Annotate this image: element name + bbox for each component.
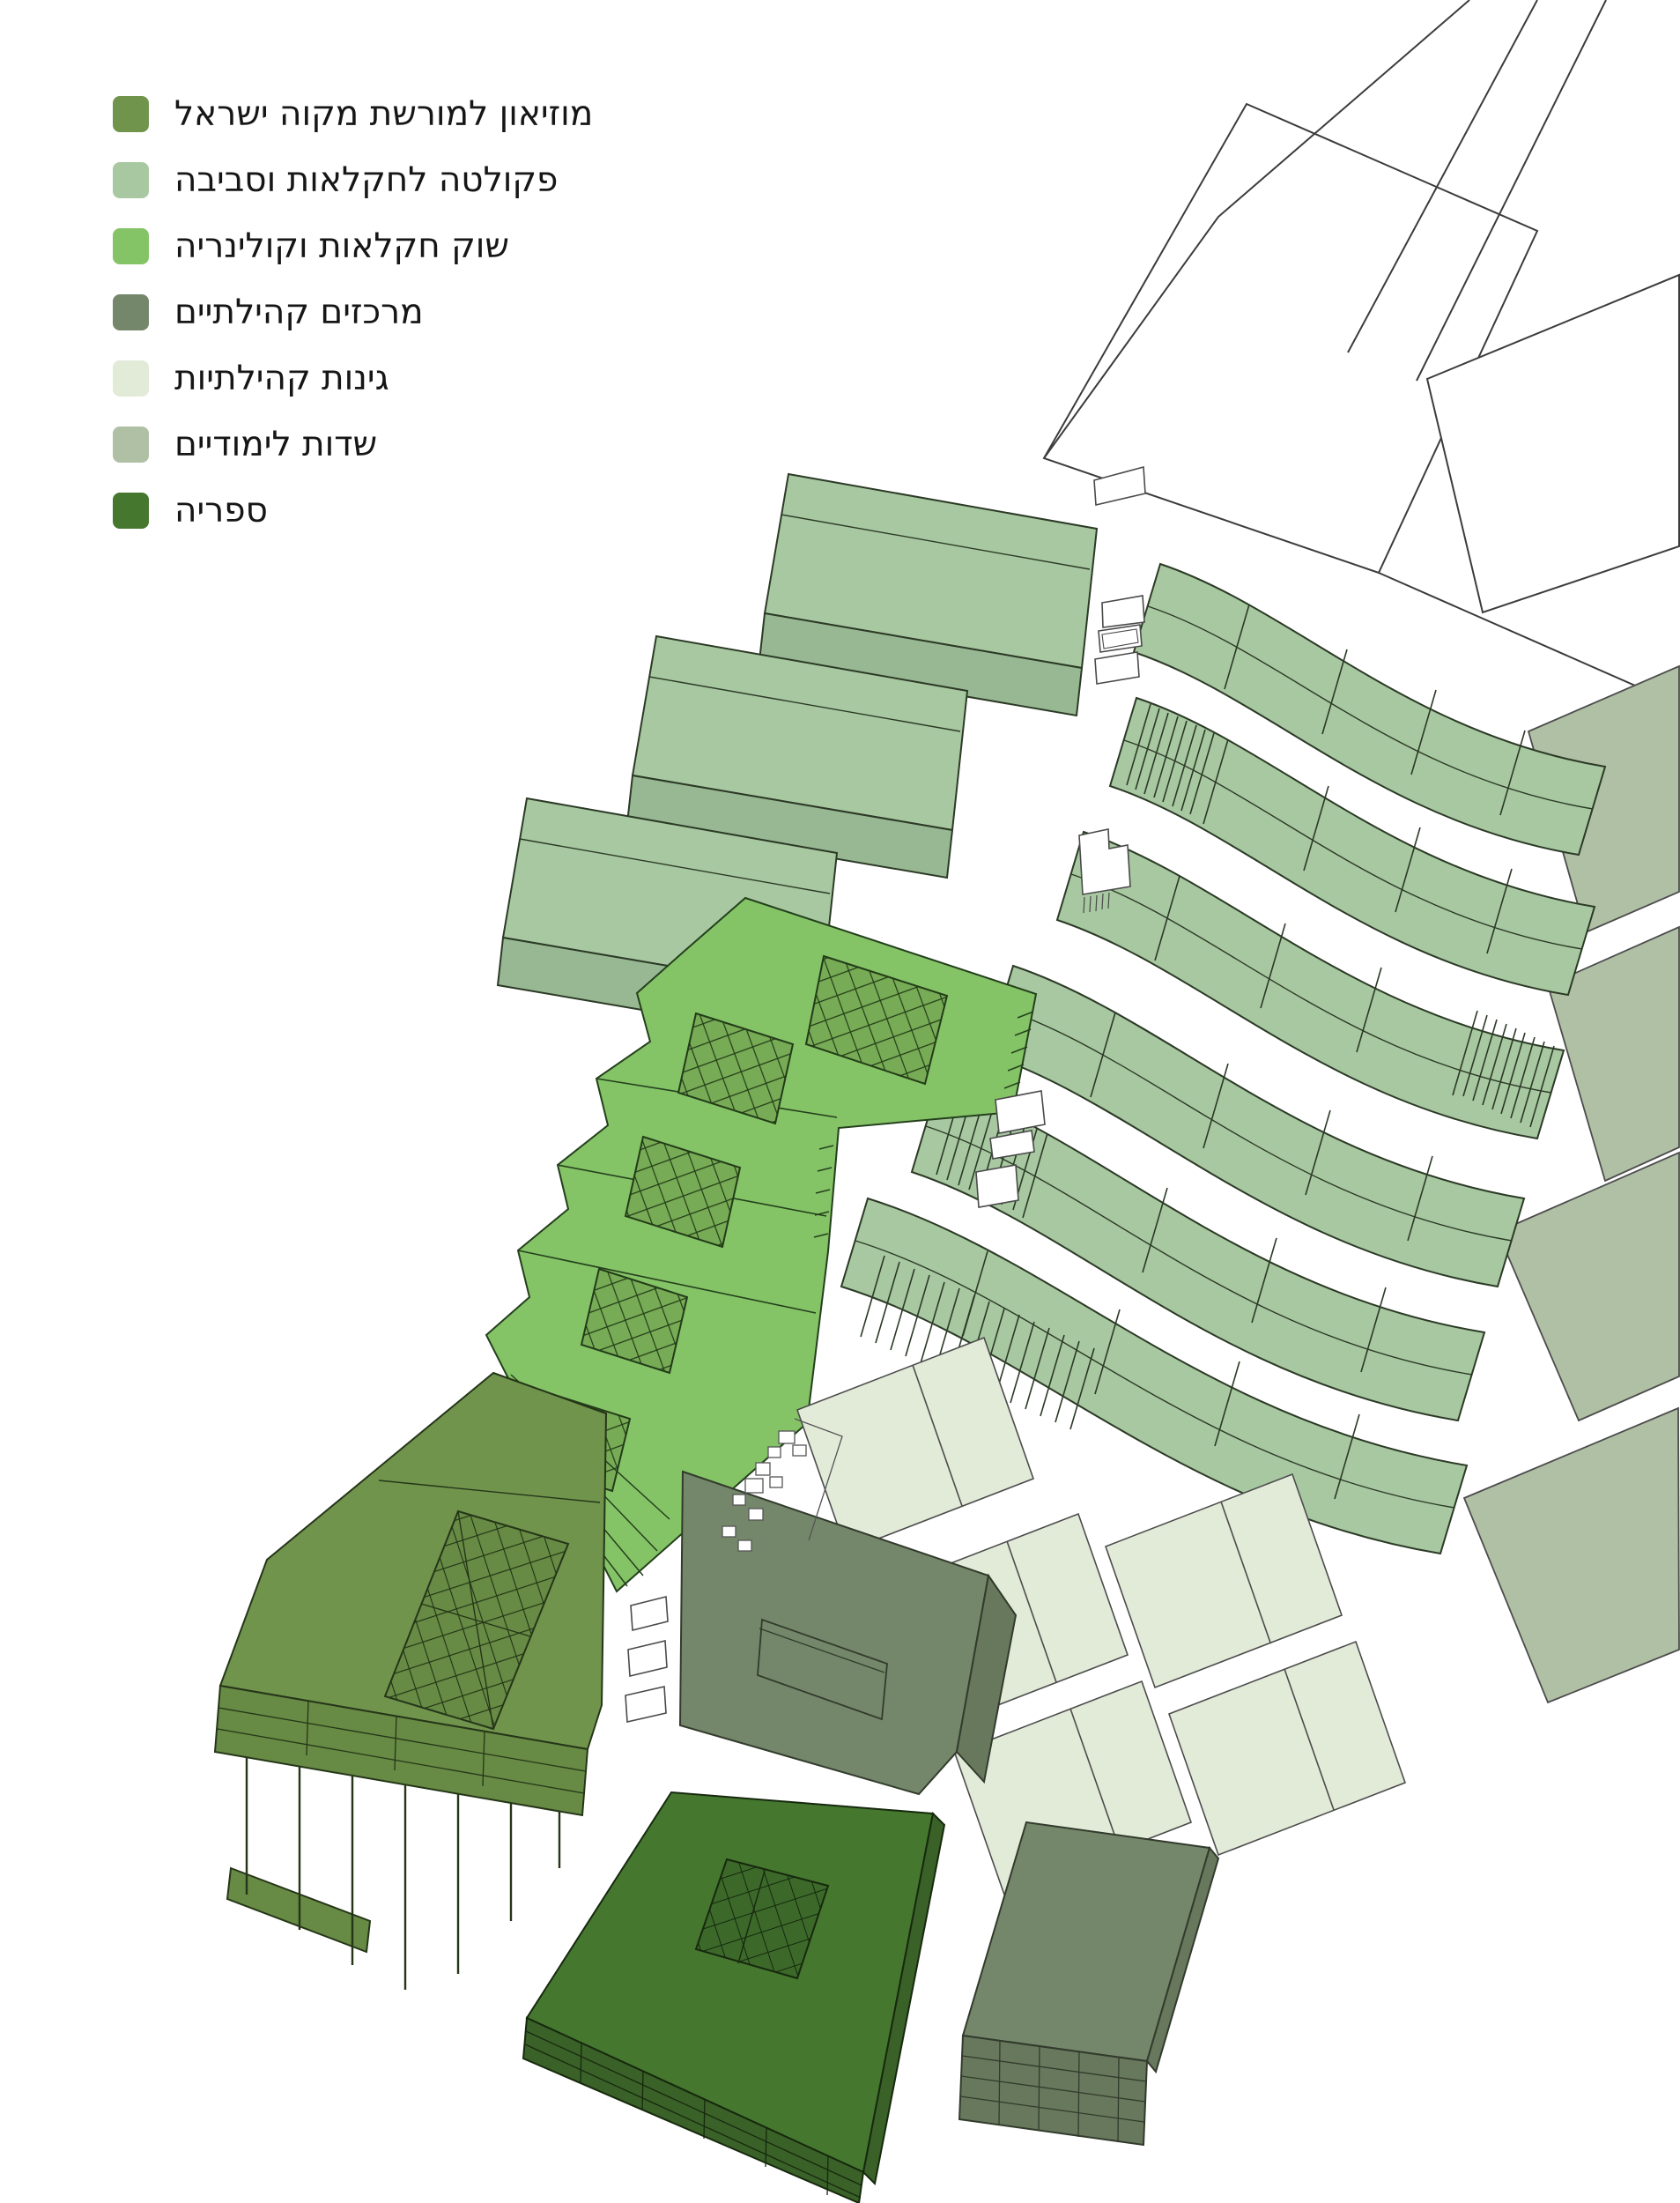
garden-parcel: [1169, 1642, 1405, 1855]
street-kiosk: [1095, 652, 1139, 684]
legend-item-community-centers: מרכזים קהילתיים: [112, 293, 593, 331]
legend-swatch: [112, 360, 150, 397]
legend-item-market: שוק חקלאות וקולינריה: [112, 227, 593, 265]
museum-building: [215, 1373, 606, 1990]
legend-item-museum: מוזיאון למורשת מקוה ישראל: [112, 95, 593, 133]
legend-label: גינות קהילתיות: [174, 360, 389, 397]
legend-swatch: [112, 95, 150, 133]
legend-label: מרכזים קהילתיים: [174, 293, 424, 331]
legend-swatch: [112, 492, 150, 530]
legend-label: שדות לימודיים: [174, 426, 377, 464]
legend-item-faculty: פקולטה לחקלאות וסביבה: [112, 161, 593, 199]
swatch-color: [113, 228, 149, 264]
legend-label: ספריה: [174, 492, 268, 530]
furniture-square: [770, 1477, 782, 1487]
swatch-color: [113, 162, 149, 198]
street-kiosk: [976, 1165, 1018, 1207]
street-kiosk: [625, 1687, 666, 1722]
legend-label: שוק חקלאות וקולינריה: [174, 227, 509, 265]
legend-swatch: [112, 426, 150, 464]
furniture-square: [722, 1526, 736, 1537]
swatch-color: [113, 360, 149, 397]
garden-parcel: [797, 1338, 1033, 1551]
furniture-square: [738, 1540, 751, 1551]
furniture-square: [733, 1495, 745, 1505]
furniture-square: [779, 1431, 795, 1443]
furniture-square: [793, 1445, 806, 1456]
legend-item-library: ספריה: [112, 492, 593, 530]
legend-item-community-gardens: גינות קהילתיות: [112, 360, 593, 397]
legend-label: מוזיאון למורשת מקוה ישראל: [174, 95, 593, 133]
library-building: [523, 1792, 944, 2203]
study-field: [1464, 1408, 1679, 1702]
community-center-face: [680, 1472, 988, 1794]
study-field: [1498, 1153, 1679, 1420]
legend-swatch: [112, 293, 150, 331]
legend-item-study-fields: שדות לימודיים: [112, 426, 593, 464]
street-kiosk: [1079, 829, 1130, 894]
street-kiosk: [1102, 596, 1144, 627]
furniture-square: [745, 1479, 763, 1493]
furniture-square: [756, 1463, 770, 1475]
swatch-color: [113, 96, 149, 132]
swatch-color: [113, 493, 149, 529]
street-kiosk: [631, 1597, 668, 1630]
legend: מוזיאון למורשת מקוה ישראל פקולטה לחקלאות…: [112, 95, 593, 530]
swatch-color: [113, 427, 149, 463]
legend-swatch: [112, 227, 150, 265]
furniture-square: [768, 1447, 781, 1458]
street-kiosk: [628, 1641, 667, 1676]
legend-label: פקולטה לחקלאות וסביבה: [174, 161, 558, 199]
furniture-square: [749, 1509, 763, 1520]
legend-swatch: [112, 161, 150, 199]
swatch-color: [113, 294, 149, 330]
